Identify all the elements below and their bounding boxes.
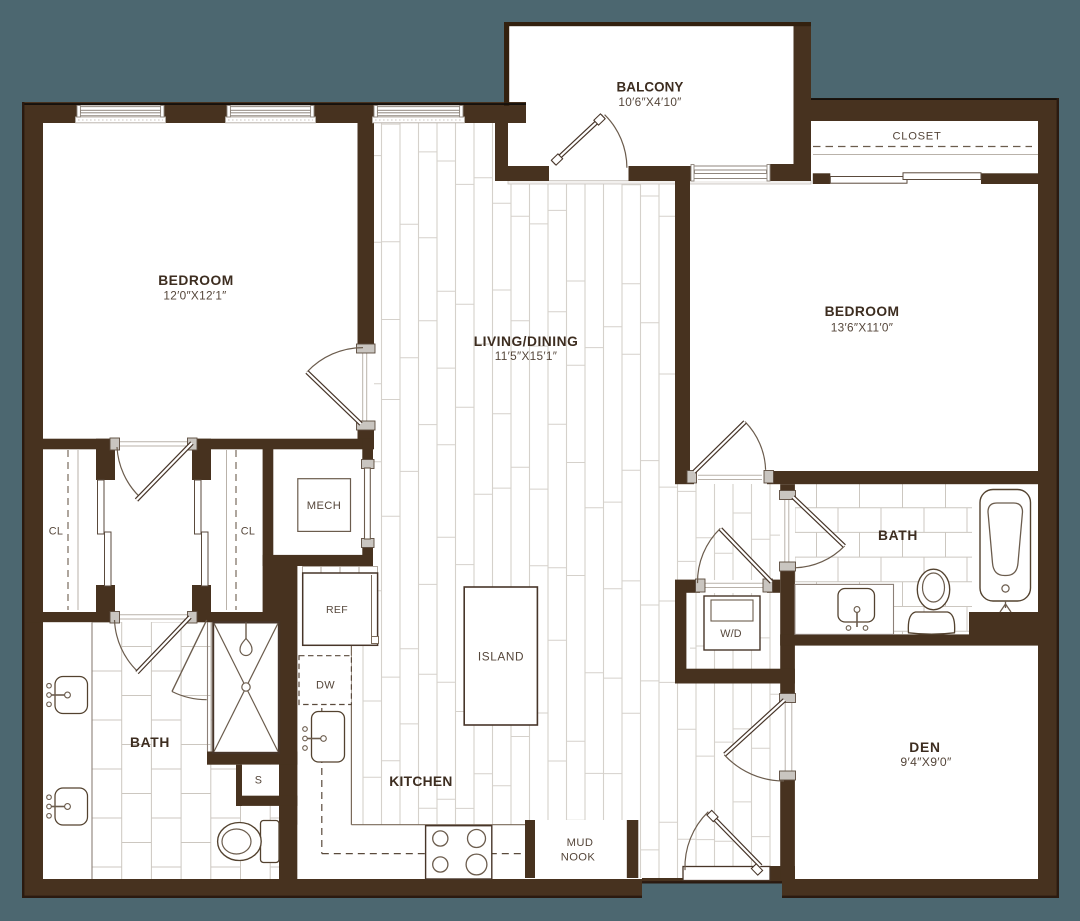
svg-text:KITCHEN: KITCHEN	[389, 774, 452, 789]
svg-text:REF: REF	[326, 604, 348, 616]
svg-text:11′5″X15′1″: 11′5″X15′1″	[495, 349, 557, 363]
svg-text:ISLAND: ISLAND	[478, 650, 524, 664]
svg-text:DEN: DEN	[909, 740, 941, 755]
svg-text:BEDROOM: BEDROOM	[825, 304, 900, 319]
svg-text:BALCONY: BALCONY	[617, 80, 684, 95]
svg-text:12′0″X12′1″: 12′0″X12′1″	[163, 289, 226, 303]
svg-text:13′6″X11′0″: 13′6″X11′0″	[831, 321, 893, 335]
svg-text:10′6″X4′10″: 10′6″X4′10″	[618, 95, 681, 109]
svg-text:LIVING/DINING: LIVING/DINING	[474, 334, 579, 349]
svg-text:CLOSET: CLOSET	[893, 130, 942, 142]
svg-text:CL: CL	[49, 526, 64, 538]
svg-text:BATH: BATH	[878, 528, 918, 543]
svg-text:9′4″X9′0″: 9′4″X9′0″	[900, 755, 952, 769]
svg-text:S: S	[255, 775, 262, 787]
svg-text:DW: DW	[316, 680, 335, 692]
svg-text:MECH: MECH	[307, 500, 342, 512]
svg-text:MUD: MUD	[567, 837, 594, 849]
svg-text:BATH: BATH	[130, 735, 170, 750]
svg-text:BEDROOM: BEDROOM	[158, 273, 234, 288]
svg-text:CL: CL	[241, 526, 256, 538]
svg-text:NOOK: NOOK	[561, 852, 596, 864]
svg-text:W/D: W/D	[720, 628, 742, 640]
